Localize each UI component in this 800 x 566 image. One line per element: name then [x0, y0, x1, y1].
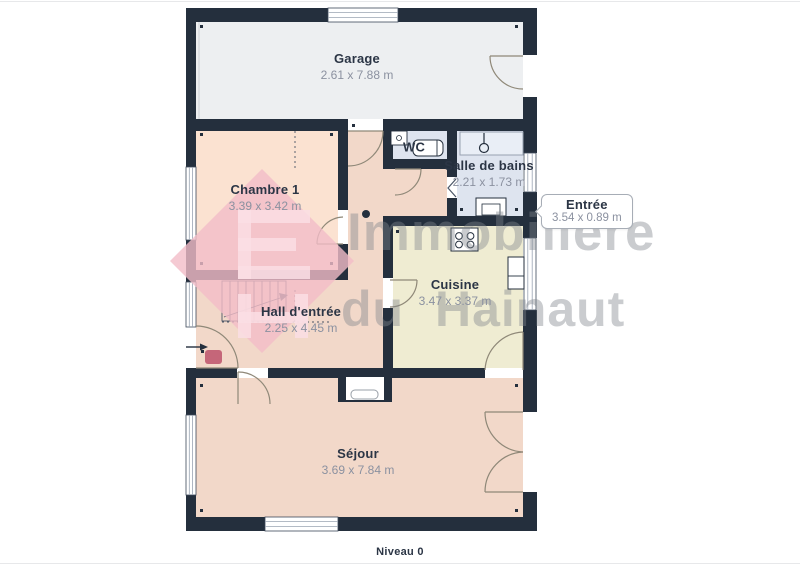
window-icon — [186, 167, 196, 240]
wall-node-dot — [362, 210, 370, 218]
window-icon — [186, 415, 196, 495]
room-label-chambre1: Chambre 1 3.39 x 3.42 m — [229, 182, 302, 214]
stove-icon — [451, 228, 478, 251]
room-label-cuisine: Cuisine 3.47 x 3.37 m — [419, 277, 492, 309]
room-label-wc: WC — [403, 140, 425, 157]
floorplan-drawing — [0, 0, 800, 566]
floorplan-page: Immobilière du Hainaut Garage 2.61 x 7.8… — [0, 0, 800, 566]
window-icon — [186, 282, 196, 327]
level-label: Niveau 0 — [376, 546, 424, 558]
room-label-entree-callout: Entrée 3.54 x 0.89 m — [541, 194, 633, 229]
fridge-icon — [508, 257, 524, 289]
room-label-garage: Garage 2.61 x 7.88 m — [321, 51, 394, 83]
sink-icon — [476, 198, 506, 216]
room-label-sejour: Séjour 3.69 x 7.84 m — [322, 446, 395, 478]
room-label-hall: Hall d'entrée 2.25 x 4.45 m — [261, 304, 341, 336]
room-floors — [196, 22, 523, 517]
bathtub-icon — [460, 132, 523, 155]
window-icon — [524, 238, 536, 310]
room-label-salle-de-bains: Salle de bains 2.21 x 1.73 m — [444, 158, 534, 190]
fireplace-hearth — [346, 377, 384, 400]
window-icon — [328, 8, 398, 22]
window-icon — [265, 517, 338, 531]
